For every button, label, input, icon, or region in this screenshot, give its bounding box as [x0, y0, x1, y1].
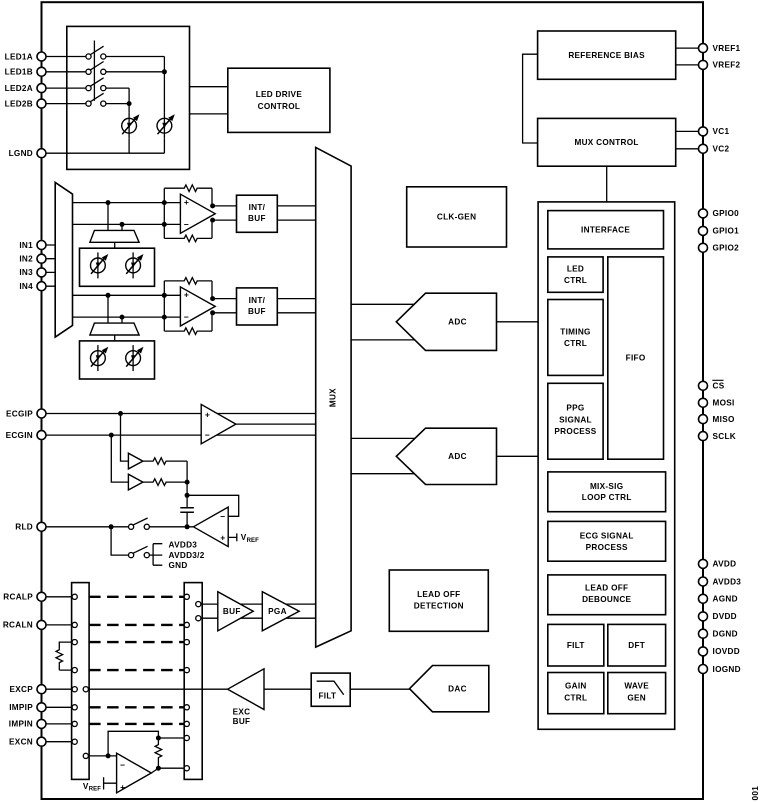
svg-text:RCALN: RCALN: [3, 621, 33, 630]
svg-text:INTERFACE: INTERFACE: [581, 226, 630, 235]
svg-text:MUX CONTROL: MUX CONTROL: [574, 138, 638, 147]
svg-text:EXCN: EXCN: [9, 738, 33, 747]
svg-text:GPIO2: GPIO2: [713, 244, 740, 253]
svg-text:CTRL: CTRL: [564, 276, 587, 285]
svg-text:LED DRIVE: LED DRIVE: [256, 90, 303, 99]
svg-text:PROCESS: PROCESS: [554, 427, 596, 436]
svg-text:LED: LED: [567, 265, 584, 274]
svg-text:REFERENCE BIAS: REFERENCE BIAS: [568, 51, 645, 60]
svg-text:LED1A: LED1A: [5, 52, 33, 61]
svg-text:ADC: ADC: [448, 452, 467, 461]
svg-text:AVDD3/2: AVDD3/2: [169, 551, 205, 560]
svg-text:BUF: BUF: [233, 717, 251, 726]
svg-text:VC1: VC1: [713, 127, 730, 136]
svg-text:IN3: IN3: [19, 268, 33, 277]
svg-text:INT/: INT/: [249, 296, 266, 305]
svg-text:−: −: [120, 760, 125, 770]
svg-text:IN2: IN2: [19, 255, 33, 264]
svg-text:EXCP: EXCP: [10, 685, 34, 694]
svg-text:AVDD: AVDD: [713, 560, 737, 569]
svg-text:IMPIN: IMPIN: [9, 720, 33, 729]
svg-text:LED2A: LED2A: [5, 84, 33, 93]
svg-text:DAC: DAC: [448, 685, 467, 694]
svg-text:−: −: [220, 511, 225, 521]
svg-text:GND: GND: [169, 561, 188, 570]
svg-text:GAIN: GAIN: [565, 682, 587, 691]
svg-text:IMPIP: IMPIP: [9, 703, 33, 712]
svg-text:LOOP CTRL: LOOP CTRL: [582, 493, 632, 502]
svg-text:LEAD OFF: LEAD OFF: [585, 583, 628, 592]
svg-text:+: +: [184, 197, 189, 207]
svg-text:GPIO0: GPIO0: [713, 209, 740, 218]
svg-text:IN1: IN1: [19, 241, 33, 250]
svg-text:ECGIP: ECGIP: [6, 409, 33, 418]
svg-text:BUF: BUF: [248, 307, 266, 316]
svg-text:DETECTION: DETECTION: [414, 601, 464, 610]
svg-text:MOSI: MOSI: [713, 399, 735, 408]
svg-text:AGND: AGND: [713, 595, 738, 604]
svg-text:IOGND: IOGND: [713, 665, 741, 674]
svg-text:AVDD3: AVDD3: [713, 577, 742, 586]
svg-text:MUX: MUX: [329, 388, 338, 407]
svg-text:WAVE: WAVE: [624, 682, 649, 691]
svg-text:AVDD3: AVDD3: [169, 540, 198, 549]
svg-text:+: +: [184, 290, 189, 300]
svg-text:CTRL: CTRL: [564, 693, 587, 702]
svg-text:BUF: BUF: [223, 607, 241, 616]
svg-text:VREF1: VREF1: [713, 44, 741, 53]
svg-text:+: +: [120, 782, 125, 792]
svg-text:ADC: ADC: [448, 318, 467, 327]
svg-text:LED1B: LED1B: [5, 68, 33, 77]
svg-text:PGA: PGA: [268, 607, 287, 616]
svg-text:CTRL: CTRL: [564, 339, 587, 348]
svg-text:001: 001: [751, 786, 760, 801]
svg-text:IN4: IN4: [19, 282, 33, 291]
svg-text:LEAD OFF: LEAD OFF: [417, 590, 460, 599]
svg-text:MISO: MISO: [713, 415, 735, 424]
svg-text:CONTROL: CONTROL: [258, 102, 301, 111]
svg-text:LGND: LGND: [9, 149, 33, 158]
svg-text:CLK-GEN: CLK-GEN: [437, 213, 476, 222]
svg-text:LED2B: LED2B: [5, 99, 33, 108]
svg-text:BUF: BUF: [248, 214, 266, 223]
svg-text:SIGNAL: SIGNAL: [559, 415, 592, 424]
svg-text:PPG: PPG: [566, 404, 584, 413]
svg-text:MIX-SIG: MIX-SIG: [590, 482, 624, 491]
svg-text:PROCESS: PROCESS: [586, 543, 628, 552]
svg-text:+: +: [205, 409, 210, 419]
svg-text:FILT: FILT: [318, 692, 336, 701]
svg-text:INT/: INT/: [249, 203, 266, 212]
svg-text:RCALP: RCALP: [3, 593, 33, 602]
svg-text:−: −: [184, 220, 189, 230]
svg-text:DGND: DGND: [713, 630, 738, 639]
svg-text:GEN: GEN: [627, 693, 646, 702]
svg-text:−: −: [184, 312, 189, 322]
svg-text:ECGIN: ECGIN: [6, 431, 33, 440]
svg-text:DEBOUNCE: DEBOUNCE: [582, 595, 631, 604]
svg-text:EXC: EXC: [233, 708, 251, 717]
svg-text:+: +: [220, 532, 225, 542]
svg-text:−: −: [205, 430, 210, 440]
svg-text:RLD: RLD: [15, 523, 33, 532]
svg-text:VREF2: VREF2: [713, 61, 741, 70]
svg-text:IOVDD: IOVDD: [713, 647, 740, 656]
svg-text:FIFO: FIFO: [626, 354, 646, 363]
svg-text:FILT: FILT: [567, 641, 585, 650]
svg-text:DVDD: DVDD: [713, 612, 737, 621]
svg-text:GPIO1: GPIO1: [713, 227, 740, 236]
svg-text:VC2: VC2: [713, 145, 730, 154]
svg-text:DFT: DFT: [628, 641, 645, 650]
svg-text:TIMING: TIMING: [560, 328, 590, 337]
svg-text:CS: CS: [713, 382, 725, 391]
svg-text:ECG SIGNAL: ECG SIGNAL: [580, 532, 634, 541]
svg-text:SCLK: SCLK: [713, 432, 737, 441]
